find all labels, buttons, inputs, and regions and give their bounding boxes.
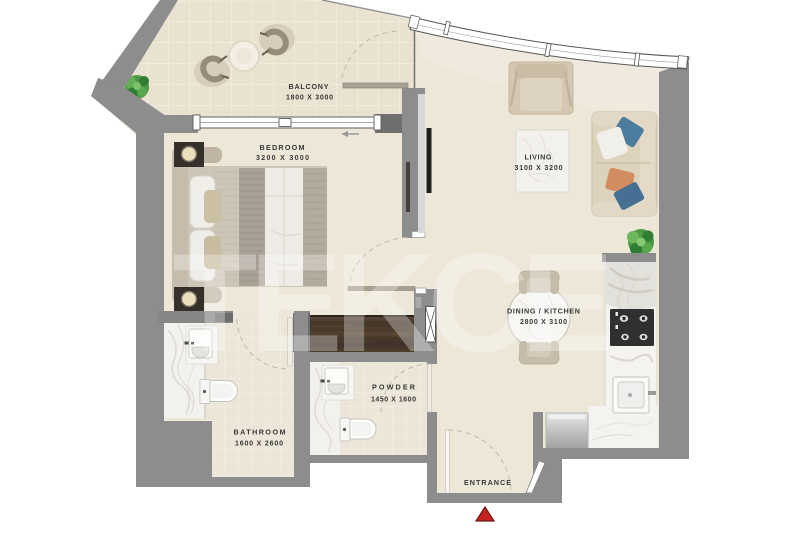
svg-text:1450 X 1600: 1450 X 1600 bbox=[371, 397, 416, 404]
svg-text:BATHROOM: BATHROOM bbox=[234, 428, 286, 437]
svg-text:2800 X 3100: 2800 X 3100 bbox=[520, 319, 567, 326]
svg-text:TEKCE: TEKCE bbox=[172, 224, 622, 381]
svg-text:LIVING: LIVING bbox=[525, 153, 552, 162]
svg-text:BEDROOM: BEDROOM bbox=[260, 143, 305, 152]
svg-text:1600 X 2600: 1600 X 2600 bbox=[235, 441, 283, 448]
svg-text:DINING / KITCHEN: DINING / KITCHEN bbox=[507, 307, 580, 316]
svg-text:ENTRANCE: ENTRANCE bbox=[464, 478, 511, 487]
svg-text:3200 X 3000: 3200 X 3000 bbox=[256, 155, 309, 162]
svg-text:3100 X 3200: 3100 X 3200 bbox=[515, 165, 563, 172]
svg-text:BALCONY: BALCONY bbox=[289, 82, 329, 91]
svg-text:1800 X 3000: 1800 X 3000 bbox=[286, 95, 333, 102]
